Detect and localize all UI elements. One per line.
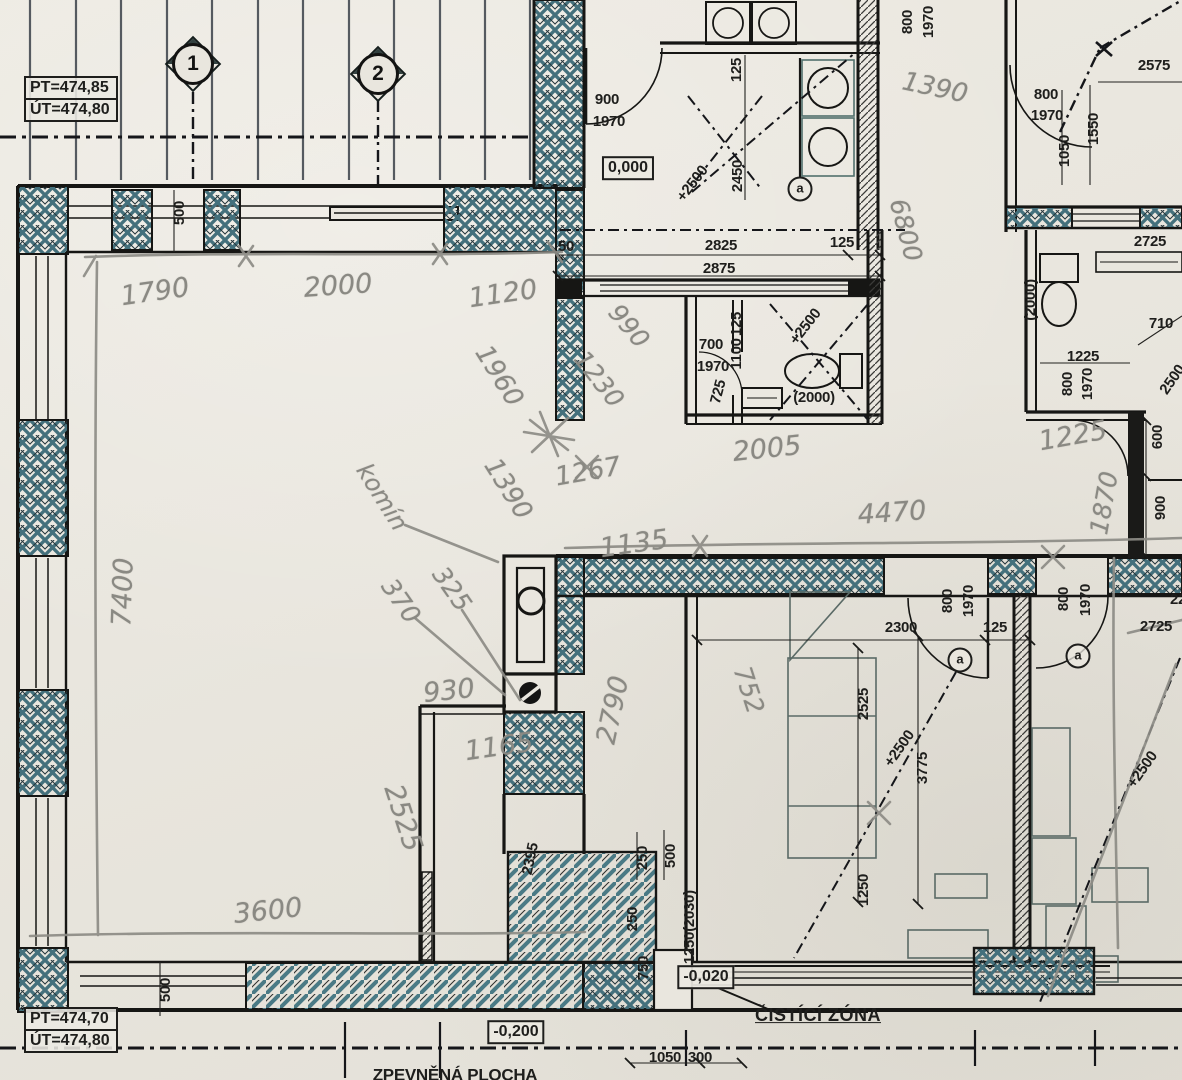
ut-level: ÚT=474,80 (24, 98, 118, 122)
handwritten-dimension: 1267 (553, 453, 623, 490)
handwritten-dimension: 1960 (470, 341, 527, 411)
dimension-label: 1970 (593, 114, 625, 131)
dimension-label: 2300 (885, 620, 917, 637)
dimension-label: 500 (158, 978, 175, 1002)
dimension-label: 2725 (1134, 234, 1166, 251)
handwritten-dimension: 2000 (303, 270, 373, 302)
dimension-label: 125 (830, 235, 854, 252)
dimension-label: 800 (1060, 372, 1077, 396)
dimension-label: 900 (595, 92, 619, 109)
reference-marker: a (1066, 644, 1091, 669)
dimension-label: 2575 (1138, 58, 1170, 75)
dimension-label: 1100 (729, 338, 746, 369)
handwritten-dimension: 2790 (593, 674, 634, 747)
dimension-label: 250 (635, 846, 652, 870)
dimension-label: +2500 (787, 306, 825, 348)
axis-marker-2: 2 (355, 51, 401, 97)
handwritten-dimension: 7400 (108, 557, 137, 627)
dimension-label: (2030) (682, 890, 699, 932)
handwritten-dimension: 2525 (380, 781, 427, 855)
dimension-label: 900 (1153, 496, 1170, 520)
dimension-label: 2725 (1140, 619, 1172, 636)
dimension-label: 1050 (649, 1050, 681, 1067)
dimension-label: 125 (983, 620, 1007, 637)
dimension-label: 800 (1034, 87, 1058, 104)
dimension-label: 2875 (703, 261, 735, 278)
elevation-box-bottom: PT=474,70 ÚT=474,80 (24, 1007, 118, 1053)
handwritten-dimension: 1165 (463, 729, 535, 765)
dimension-label: (2000) (1023, 279, 1040, 321)
dimension-label: 2825 (705, 238, 737, 255)
dimension-label: 1970 (1080, 368, 1097, 400)
handwritten-dimension: 6800 (886, 196, 927, 264)
dimension-label: 2525 (856, 688, 873, 720)
dimension-label: 800 (940, 589, 957, 613)
ut-level: ÚT=474,80 (24, 1029, 118, 1053)
dimension-label: 3775 (915, 752, 932, 784)
axis-marker-1: 1 (170, 41, 216, 87)
dimension-label: 600 (1150, 425, 1167, 449)
handwritten-dimension: 752 (730, 663, 769, 716)
level-label: -0,200 (487, 1020, 544, 1044)
handwritten-dimension: 4470 (857, 497, 927, 529)
dimension-label: 1970 (697, 359, 729, 376)
handwritten-dimension: 1230 (570, 346, 629, 412)
dimension-label: 1970 (1031, 108, 1063, 125)
dimension-label: 1250 (682, 932, 699, 964)
dimension-label: 500 (172, 201, 189, 225)
handwritten-dimension: 325 (428, 562, 476, 615)
floor-plan: PT=474,85 ÚT=474,80 PT=474,70 ÚT=474,80 … (0, 0, 1182, 1080)
handwritten-dimension: 1120 (467, 276, 539, 312)
dimension-label: 1225 (1067, 349, 1099, 366)
dimension-label: 800 (1056, 587, 1073, 611)
handwritten-dimension: 2005 (731, 432, 802, 466)
dimension-label: 800 (900, 10, 917, 34)
dimension-label: 500 (663, 844, 680, 868)
dimension-label: 300 (688, 1050, 712, 1067)
reference-marker: a (788, 177, 813, 202)
area-label: ZPEVNĚNÁ PLOCHA (373, 1067, 538, 1080)
dimension-label: 125 (729, 312, 746, 336)
handwritten-dimension: 1870 (1086, 470, 1122, 537)
dimension-label: 50 (558, 239, 574, 256)
dimension-label: 125 (729, 58, 746, 82)
axis-number: 2 (357, 53, 399, 95)
dimension-label: 750 (636, 956, 653, 980)
zone-label: ČISTÍCÍ ZÓNA (755, 1006, 881, 1026)
handwritten-dimension: 1390 (900, 68, 970, 107)
dimension-label: 1970 (1078, 584, 1095, 616)
dimension-label: (2000) (793, 390, 835, 407)
dimension-label: 710 (1149, 316, 1173, 333)
handwritten-dimension: 1390 (479, 454, 536, 524)
dimension-labels-layer: 5005090019700,0001252450+250028251252875… (0, 0, 1182, 1080)
dimension-label: 1050 (1057, 135, 1074, 167)
dimension-label: 1970 (961, 585, 978, 617)
handwritten-dimension: komín (352, 459, 411, 534)
dimension-label: 2395 (520, 842, 543, 877)
handwritten-dimension: 930 (422, 675, 476, 707)
axis-number: 1 (172, 43, 214, 85)
reference-marker: a (948, 648, 973, 673)
dimension-label: 700 (699, 337, 723, 354)
elevation-box-top: PT=474,85 ÚT=474,80 (24, 76, 118, 122)
handwritten-dimension: 3600 (232, 894, 303, 928)
dimension-label: 1550 (1086, 113, 1103, 145)
dimension-label: +2500 (674, 163, 712, 205)
dimension-label: 2450 (730, 160, 747, 192)
dimension-label: +2500 (1125, 749, 1162, 792)
dimension-label: 2500 (1157, 362, 1182, 398)
handwritten-dimension: 1135 (598, 526, 670, 562)
dimension-label: 725 (708, 378, 730, 406)
handwritten-dimension: 990 (604, 300, 654, 353)
handwritten-dimension: 1790 (119, 274, 191, 310)
dimension-label: 250 (625, 907, 642, 931)
pt-level: PT=474,70 (24, 1007, 118, 1031)
level-label: 0,000 (602, 156, 654, 180)
pt-level: PT=474,85 (24, 76, 118, 100)
handwritten-dimension: 1225 (1037, 417, 1109, 456)
dimension-label: 1250 (856, 874, 873, 906)
level-label: -0,020 (677, 965, 734, 989)
handwritten-dimension: 370 (377, 574, 425, 627)
dimension-label: 22 (1170, 592, 1182, 609)
dimension-label: 1970 (921, 6, 938, 38)
